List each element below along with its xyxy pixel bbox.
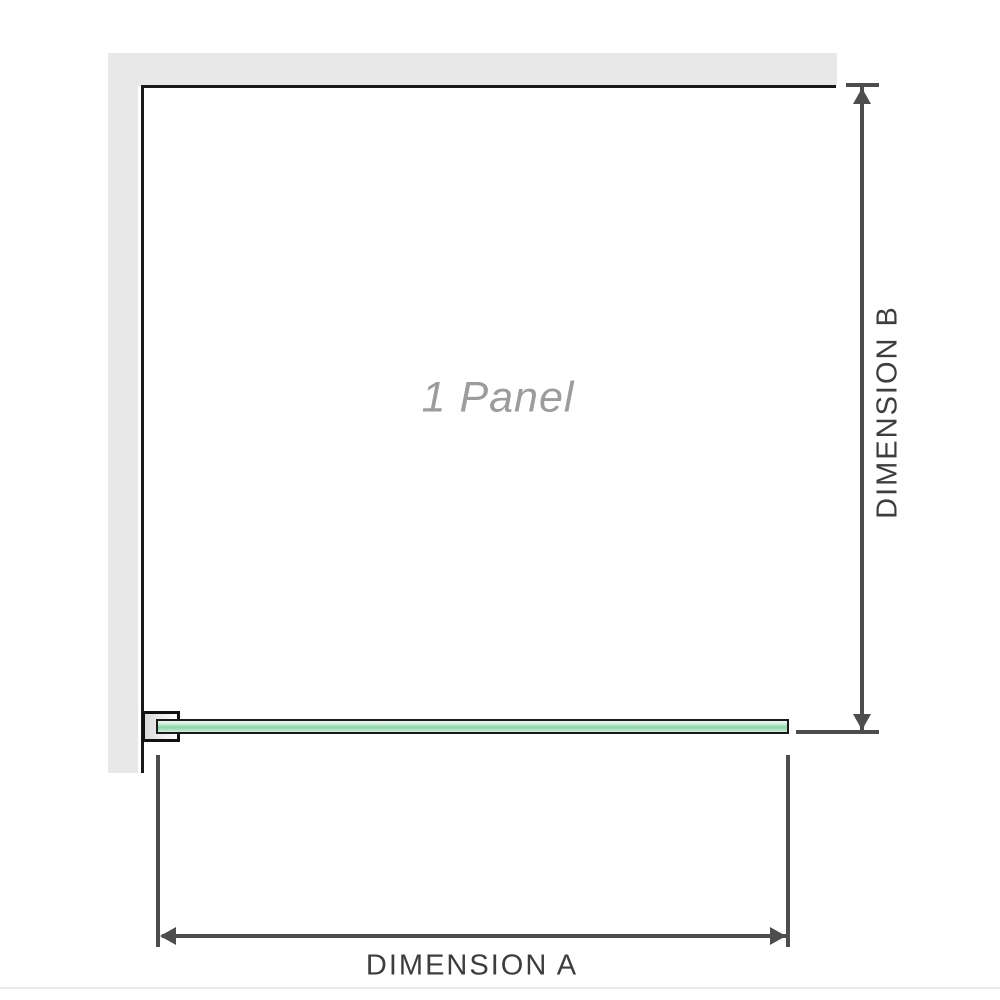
wall-top	[108, 53, 837, 86]
dimension-b-bottom-tick	[796, 730, 879, 734]
glass-panel	[156, 719, 789, 734]
dimension-a-right-extension-line	[786, 755, 790, 947]
shower-panel-diagram: 1 Panel DIMENSION B DIMENSION A	[0, 0, 1000, 1000]
dimension-a-label: DIMENSION A	[366, 950, 578, 983]
dimension-a-line	[162, 934, 786, 938]
dimension-b-arrow-up-icon	[853, 88, 871, 104]
wall-left	[108, 53, 138, 773]
dimension-a-left-extension-line	[156, 755, 160, 947]
dimension-b-arrow-down-icon	[853, 714, 871, 730]
panel-count-label: 1 Panel	[422, 374, 575, 423]
dimension-a-arrow-left-icon	[160, 927, 176, 945]
dimension-b-line	[860, 87, 864, 732]
dimension-b-label: DIMENSION B	[872, 305, 905, 519]
page-separator-line	[0, 987, 1000, 989]
dimension-a-arrow-right-icon	[770, 927, 786, 945]
wall-inner-edge-top	[141, 85, 836, 88]
wall-inner-edge-left	[141, 85, 144, 773]
